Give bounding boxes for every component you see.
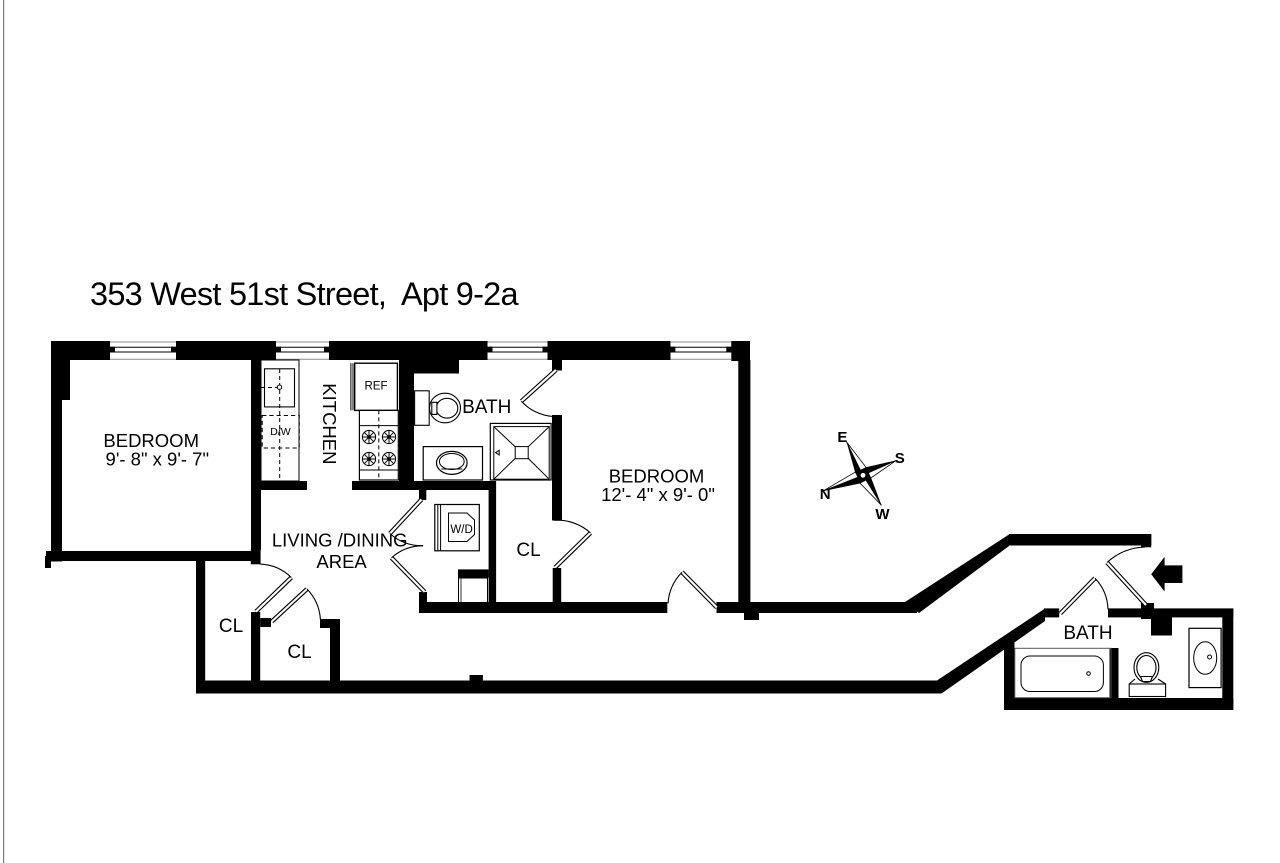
svg-text:D/W: D/W [270, 426, 291, 438]
svg-text:LIVING /DINING: LIVING /DINING [272, 530, 408, 551]
svg-text:353 West 51st Street, Apt 9-2: 353 West 51st Street, Apt 9-2a [90, 276, 519, 312]
svg-text:CL: CL [287, 642, 311, 663]
svg-text:BATH: BATH [1063, 623, 1112, 644]
svg-text:E: E [837, 429, 847, 446]
svg-text:W/D: W/D [450, 524, 472, 536]
svg-text:12'- 4" x 9'- 0": 12'- 4" x 9'- 0" [601, 484, 715, 505]
svg-text:KITCHEN: KITCHEN [319, 383, 340, 464]
svg-text:BATH: BATH [462, 397, 511, 418]
svg-text:S: S [895, 450, 905, 467]
svg-text:W: W [875, 506, 890, 523]
svg-text:N: N [820, 486, 831, 503]
svg-text:CL: CL [219, 616, 243, 637]
svg-text:9'- 8" x 9'- 7": 9'- 8" x 9'- 7" [106, 449, 209, 470]
svg-text:CL: CL [516, 540, 540, 561]
svg-text:REF: REF [365, 381, 388, 393]
svg-text:AREA: AREA [316, 551, 367, 572]
